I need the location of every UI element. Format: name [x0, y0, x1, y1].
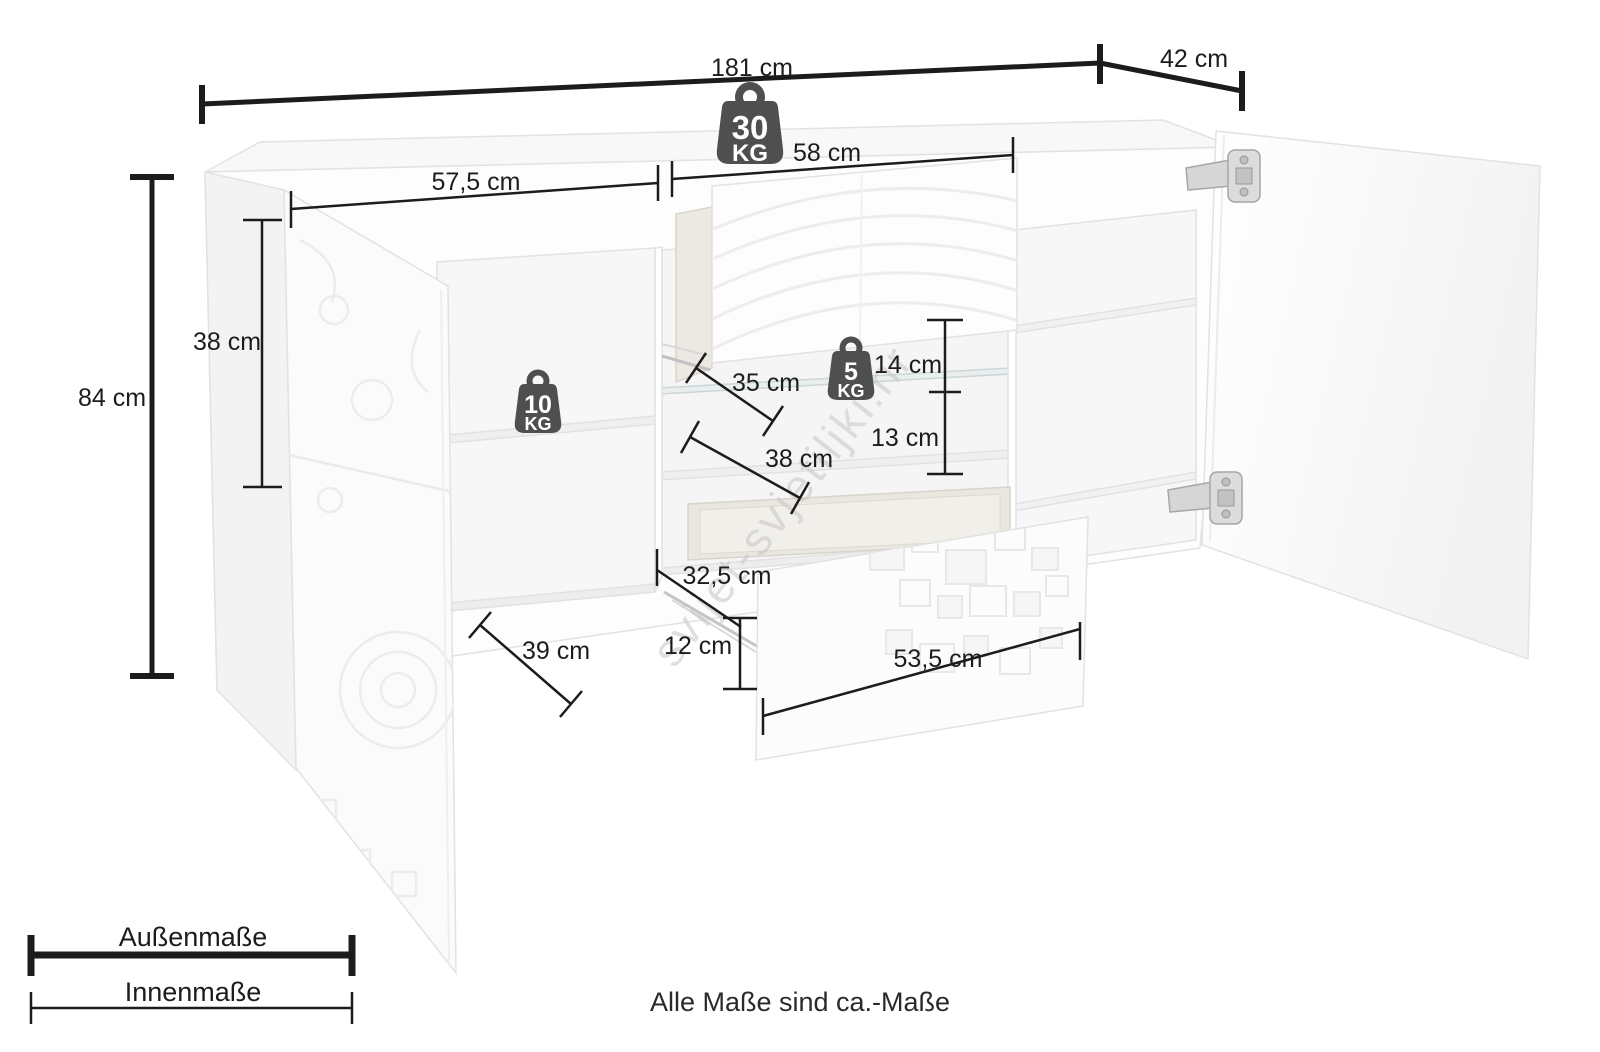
top-drawer-front	[712, 158, 1017, 363]
dim-left-inner-height-label: 38 cm	[193, 328, 261, 356]
dim-total-width-label: 181 cm	[711, 54, 793, 82]
right-door	[1202, 131, 1540, 659]
right-compartment	[1014, 210, 1196, 566]
dim-bottom-depth-label: 39 cm	[522, 637, 590, 665]
dim-above-glass-label: 14 cm	[874, 351, 942, 379]
dim-lower-shelf-depth-label: 38 cm	[765, 445, 833, 473]
cabinet-left-stile	[205, 172, 296, 770]
dim-glass-shelf-depth-label: 35 cm	[732, 369, 800, 397]
dim-drawer-height-label: 12 cm	[664, 632, 732, 660]
weight-unit: KG	[525, 414, 552, 434]
footer-note: Alle Maße sind ca.-Maße	[650, 987, 950, 1017]
dimension-diagram-page: svijet-svjetiljki.hr 30 KG 10 KG 5 KG 18…	[0, 0, 1600, 1052]
divider-left-middle	[655, 247, 662, 592]
dim-drawer-width-label: 53,5 cm	[894, 645, 983, 673]
legend-outer: Außenmaße	[31, 922, 352, 976]
legend-outer-label: Außenmaße	[119, 922, 268, 952]
sideboard-dimension-diagram: svijet-svjetiljki.hr 30 KG 10 KG 5 KG 18…	[0, 0, 1600, 1052]
dim-height: 84 cm	[78, 177, 174, 676]
dim-total-width: 181 cm	[202, 44, 1100, 124]
dim-height-label: 84 cm	[78, 384, 146, 412]
weight-unit: KG	[732, 140, 768, 167]
dim-drawer-depth-label: 32,5 cm	[683, 562, 772, 590]
dim-depth: 42 cm	[1100, 45, 1242, 111]
legend-inner-label: Innenmaße	[125, 977, 262, 1007]
weight-unit: KG	[838, 381, 865, 401]
dim-middle-inner-width-label: 58 cm	[793, 139, 861, 167]
dim-depth-label: 42 cm	[1160, 45, 1228, 73]
legend: Außenmaße Innenmaße	[31, 922, 352, 1024]
dim-left-inner-width-label: 57,5 cm	[432, 168, 521, 196]
dim-below-glass-label: 13 cm	[871, 424, 939, 452]
sideboard-illustration	[205, 120, 1540, 973]
legend-inner: Innenmaße	[31, 977, 352, 1024]
weight-badge-30kg: 30 KG	[717, 86, 783, 167]
